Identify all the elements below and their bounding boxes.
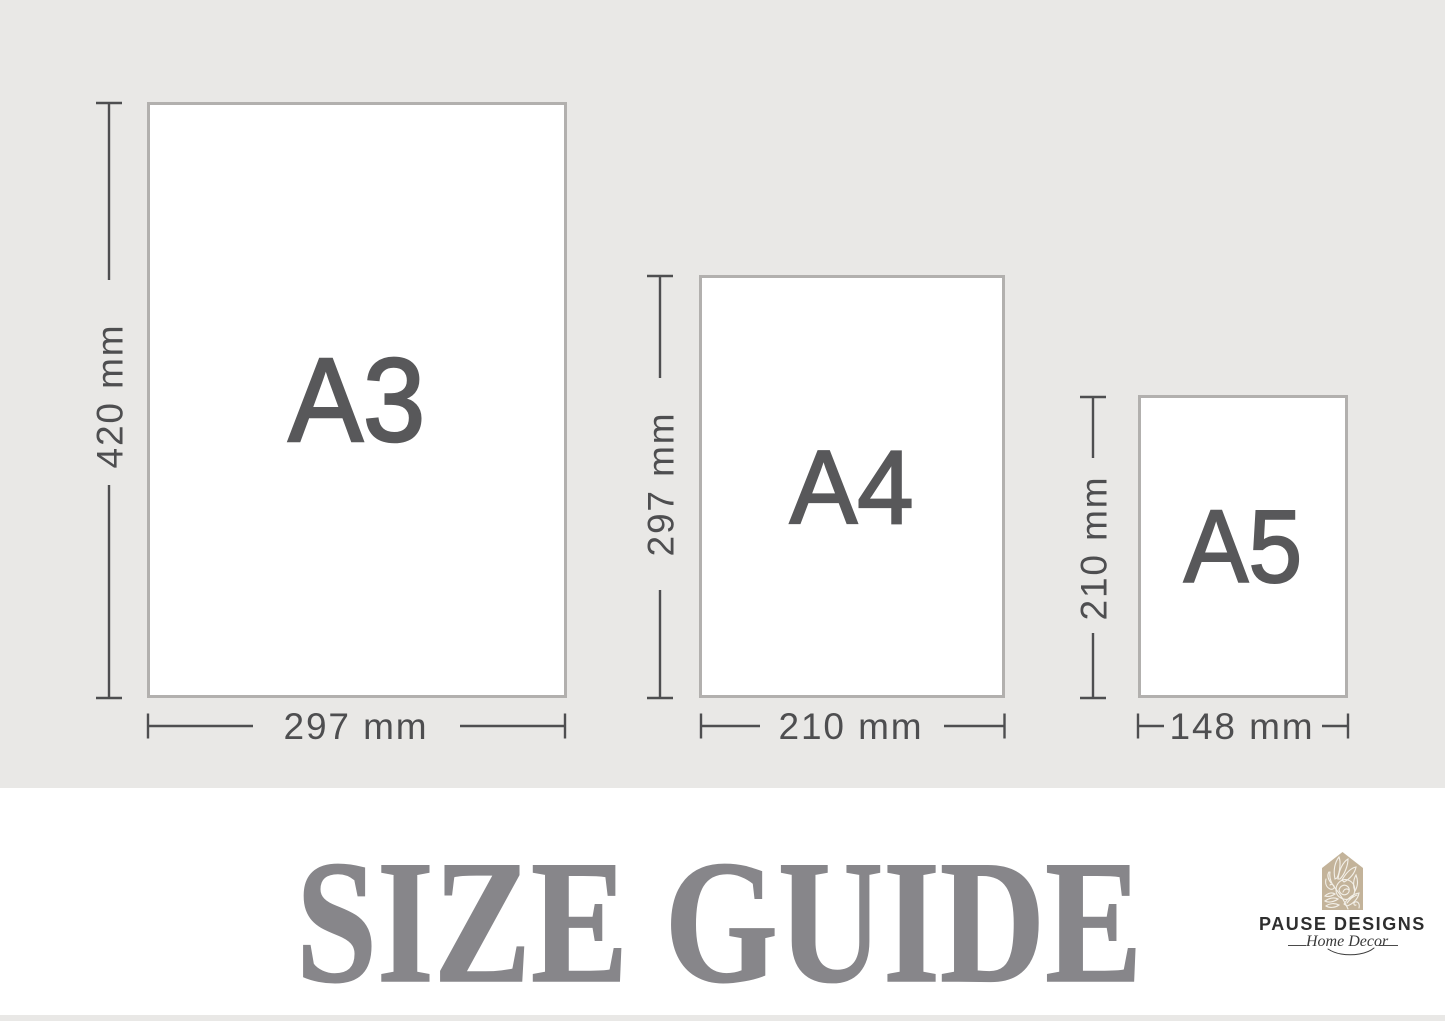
svg-text:148 mm: 148 mm — [1169, 706, 1314, 747]
svg-text:210 mm: 210 mm — [778, 706, 923, 747]
svg-text:210 mm: 210 mm — [1074, 475, 1115, 620]
svg-text:297 mm: 297 mm — [641, 411, 682, 556]
svg-text:297 mm: 297 mm — [283, 706, 428, 747]
svg-text:420 mm: 420 mm — [90, 323, 131, 468]
